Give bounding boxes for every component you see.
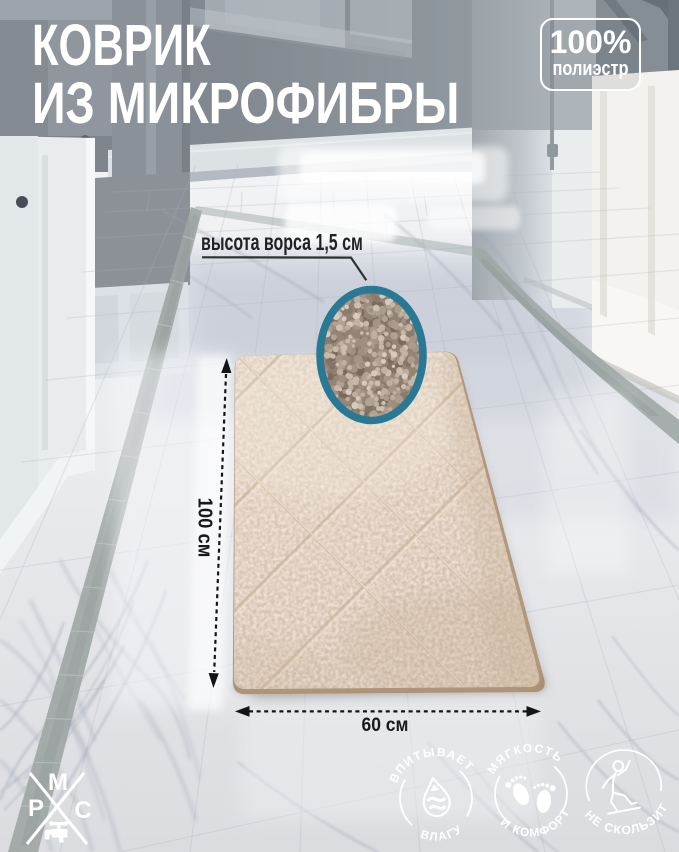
svg-text:С: С <box>74 797 91 824</box>
svg-text:Р: Р <box>28 795 44 822</box>
svg-text:М: М <box>48 769 68 796</box>
